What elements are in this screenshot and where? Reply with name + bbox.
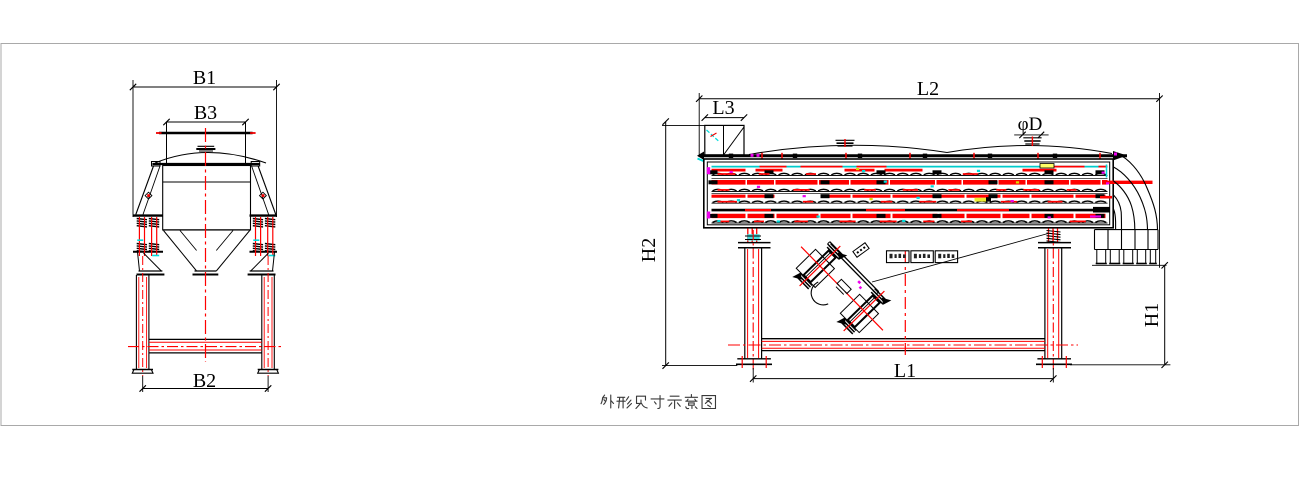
svg-text:φD: φD xyxy=(1018,114,1043,135)
svg-text:L3: L3 xyxy=(712,97,734,119)
svg-text:B3: B3 xyxy=(194,102,217,124)
svg-text:H1: H1 xyxy=(1141,303,1163,327)
svg-text:H2: H2 xyxy=(638,238,660,262)
svg-text:L2: L2 xyxy=(917,78,939,100)
svg-text:B1: B1 xyxy=(193,67,216,89)
